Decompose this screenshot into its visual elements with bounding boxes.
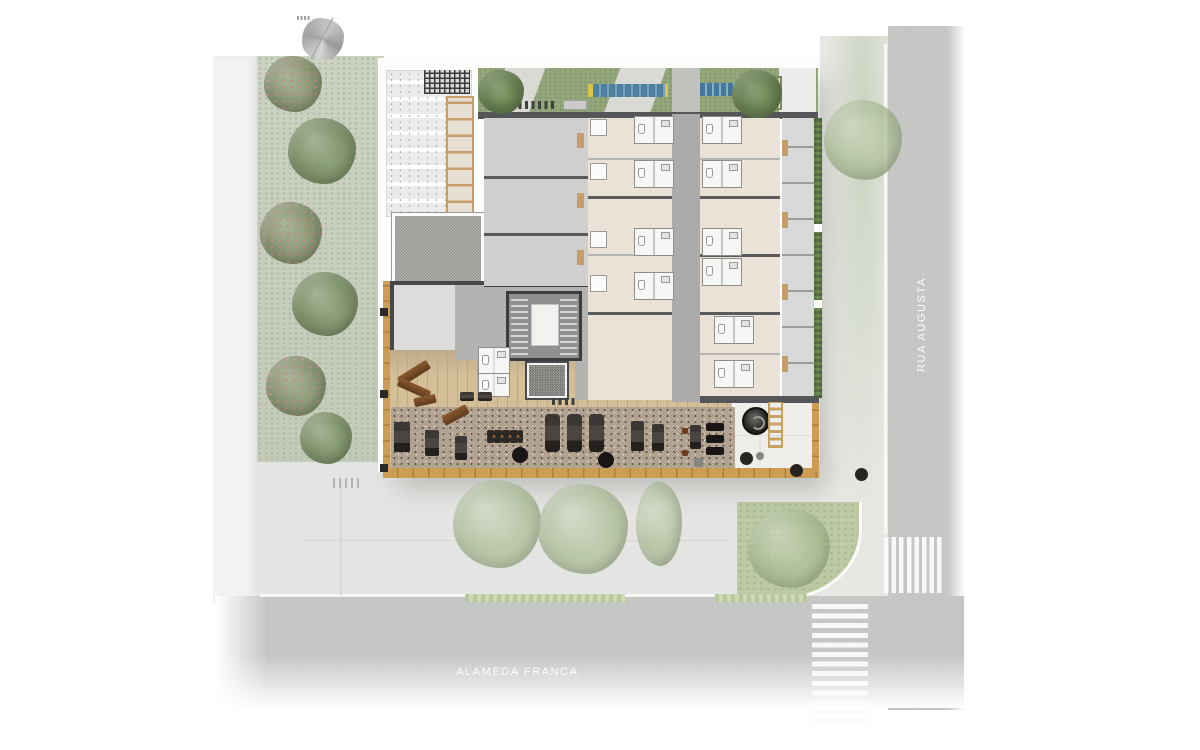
exercise-mat [706,435,724,443]
crosswalk-rua-augusta [884,537,945,593]
tree [292,272,358,336]
balcony-door-frame [782,212,788,228]
neighbor-building-roof [213,56,257,602]
unit-bathroom [702,258,742,286]
dumbbell-rack [487,430,523,443]
street-tree [748,508,830,588]
central-corridor [672,114,700,402]
unit-bathroom [634,160,674,188]
garden-table [563,100,587,110]
tree [264,56,322,112]
garden-tree [732,70,782,118]
balcony-door-frame [782,140,788,156]
grate-trellis [424,70,470,94]
crosswalk-alameda-franca [812,604,868,728]
unit-wall [588,196,672,199]
deck-post [380,390,388,398]
unit-wall [588,312,672,315]
exercise-bike [631,421,644,451]
weight-plate [512,447,528,463]
exercise-mat [706,423,724,431]
street-label-rua-augusta: RUA AUGUSTA [916,262,928,372]
exercise-bike [652,424,664,451]
unit-bathroom [702,160,742,188]
tree [288,118,356,184]
door-frame [577,250,584,265]
street-tree [824,100,902,180]
bench [552,398,578,405]
treadmill [545,414,560,452]
deck-frame-right [812,393,819,471]
tree [300,412,352,464]
kettlebell [682,428,688,434]
balcony-door-frame [782,356,788,372]
medicine-ball [694,458,703,467]
street-tree [538,484,628,574]
treadmill [589,414,604,452]
deck-post [380,464,388,472]
garden-walkway [779,68,816,114]
gym-squat-rack [394,422,410,452]
street-label-alameda-franca: ALAMEDA FRANCA [456,666,579,678]
deck-frame-bottom [383,468,819,478]
jacuzzi [742,407,770,435]
street-tree [453,480,541,568]
core-bathroom [478,347,510,374]
unit-closet [590,231,607,248]
stair-landing [531,304,559,346]
gym-bench [460,392,474,401]
unit-partition [700,353,780,355]
street-tree [636,482,682,566]
bollard [855,468,868,481]
unit-bathroom [714,316,754,344]
planter-boxes-column [446,96,474,219]
pavement-joint [340,478,342,596]
gym-bench [478,392,492,401]
unit-bathroom [634,228,674,256]
unit-bathroom [702,228,742,256]
curbside-hedge [715,594,807,602]
kettlebell [682,450,688,456]
treadmill [567,414,582,452]
unit-wall [700,196,780,199]
unit-closet [590,163,607,180]
planter-pot [790,464,803,477]
exercise-mat [706,447,724,455]
balcony-door-frame [782,284,788,300]
door-frame [577,133,584,148]
large-unit-floors [484,118,588,286]
weight-plate [598,452,614,468]
unit-wall [700,312,780,315]
solar-panel-array [588,84,668,97]
unit-closet [590,275,607,292]
hedge-gap [814,300,822,308]
garden-tree [478,70,524,114]
gym-machine [425,430,439,456]
deck-ladder [768,402,783,448]
perimeter-hedge [814,118,822,398]
unit-closet [590,119,607,136]
deck-post [380,308,388,316]
stone [756,452,764,460]
rowing-machine [690,425,701,449]
floor-plan-canvas: RUA AUGUSTA ALAMEDA FRANCA [0,0,1200,750]
stair-core [506,291,582,361]
curbside-hedge [465,594,625,602]
unit-bathroom [634,272,674,300]
unit-bathroom [714,360,754,388]
north-arrow-icon [302,18,344,60]
planter-pot [740,452,753,465]
gym-machine [455,436,467,460]
hedge-gap [814,224,822,232]
courtyard-wall [700,396,819,403]
unit-bathroom [634,116,674,144]
tree [266,356,326,416]
paved-patio [527,363,567,398]
tree [260,202,322,264]
north-arrow-label [297,16,311,20]
bike-rack [333,478,361,488]
garden-path-corridor [672,68,700,114]
unit-bathroom [702,116,742,144]
door-frame [577,193,584,208]
